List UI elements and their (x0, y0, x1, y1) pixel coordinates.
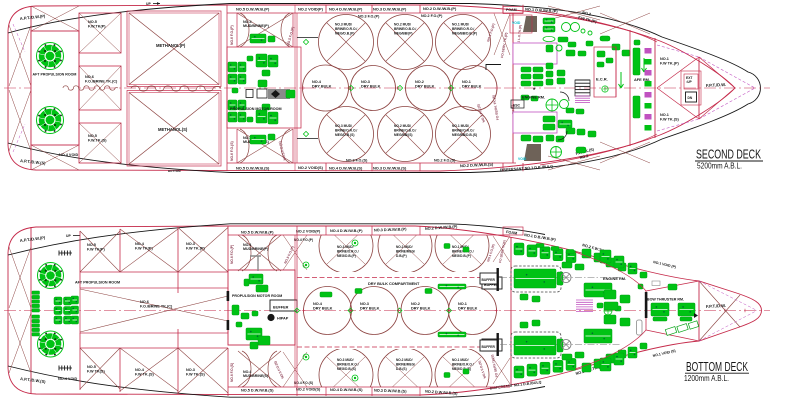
svg-text:MEG/BB/D.B.(S): MEG/BB/D.B.(S) (452, 133, 477, 137)
svg-text:NO.3 MUD/: NO.3 MUD/ (335, 124, 352, 128)
svg-text:VOID: VOID (512, 21, 521, 25)
svg-text:D.B.(P): D.B.(P) (396, 254, 407, 258)
svg-text:DRY BULK: DRY BULK (313, 306, 333, 310)
svg-text:MEG/BB/(S): MEG/BB/(S) (394, 133, 413, 137)
svg-text:NO.3 MUD/: NO.3 MUD/ (337, 358, 354, 362)
svg-text:MUD/BRINE(P): MUD/BRINE(P) (243, 24, 270, 28)
svg-text:E.C.R.: E.C.R. (596, 77, 608, 82)
svg-text:NO.2 F.O.(P): NO.2 F.O.(P) (421, 14, 443, 18)
svg-text:NO.4 D.W./W.B.(P): NO.4 D.W./W.B.(P) (329, 6, 363, 11)
svg-text:F.P.T./D.W.: F.P.T./D.W. (706, 303, 726, 309)
svg-text:MEG/D.B.(P): MEG/D.B.(P) (337, 254, 356, 258)
svg-text:BOW THRUSTER RM.: BOW THRUSTER RM. (647, 298, 684, 302)
svg-text:FOAM: FOAM (506, 8, 517, 12)
svg-text:F.P.T./D.W.: F.P.T./D.W. (706, 82, 726, 88)
svg-text:1200mm A.B.L.: 1200mm A.B.L. (684, 373, 729, 383)
svg-text:DRY BULK: DRY BULK (458, 306, 478, 310)
svg-text:NO.2 VOID(P): NO.2 VOID(P) (296, 230, 321, 234)
svg-text:ENGINE RM.: ENGINE RM. (522, 95, 545, 100)
svg-text:NO.2 VOID(S): NO.2 VOID(S) (298, 165, 324, 170)
svg-text:NO.6 F.O.(P): NO.6 F.O.(P) (230, 25, 234, 45)
svg-text:F.W.TK.(S): F.W.TK.(S) (88, 138, 107, 142)
svg-text:NO.2 MUD/: NO.2 MUD/ (396, 358, 413, 362)
svg-text:NO.2 VOID(S): NO.2 VOID(S) (296, 388, 321, 392)
svg-text:ESC: ESC (513, 103, 521, 107)
svg-text:NO.4 VOID: NO.4 VOID (59, 153, 78, 157)
svg-text:MUD/BRINE(S): MUD/BRINE(S) (243, 374, 269, 378)
svg-text:NO.3 F.O.(P): NO.3 F.O.(P) (358, 15, 380, 19)
svg-text:BRINE/O.R.O./: BRINE/O.R.O./ (335, 129, 357, 133)
svg-text:SECOND DECK: SECOND DECK (696, 147, 761, 162)
svg-text:MEG/D.B.(S): MEG/D.B.(S) (335, 133, 354, 137)
svg-text:MEG/BB/D.B.(P): MEG/BB/D.B.(P) (452, 32, 477, 36)
svg-text::UP: :UP (686, 80, 692, 84)
svg-text:METHANOL(P): METHANOL(P) (156, 43, 186, 48)
svg-text:F.W TK.(S): F.W TK.(S) (660, 117, 680, 121)
svg-text:DRY BULK COMPARTMENT: DRY BULK COMPARTMENT (368, 281, 420, 286)
svg-text:NO.2 VOID(P): NO.2 VOID(P) (298, 6, 324, 11)
svg-text:NO.5 D.W./W.B.(P): NO.5 D.W./W.B.(P) (236, 7, 270, 12)
svg-text:NO.2 D.W./W.B.(P): NO.2 D.W./W.B.(P) (423, 6, 457, 11)
svg-text:NO.6 F.O.(P): NO.6 F.O.(P) (230, 245, 234, 264)
svg-text:D.B.(S): D.B.(S) (396, 367, 407, 371)
svg-text:BRINE/O.R.O./: BRINE/O.R.O./ (337, 362, 359, 366)
svg-text:F.W TK(P): F.W TK(P) (87, 247, 105, 251)
svg-text:NO.5 D.W./W.B.(S): NO.5 D.W./W.B.(S) (241, 389, 274, 393)
svg-text:BOTTOM: BOTTOM (168, 169, 181, 173)
svg-text:BRINE/O.R.O./: BRINE/O.R.O./ (452, 27, 474, 31)
svg-text:NO.3 MUD/: NO.3 MUD/ (337, 245, 354, 249)
svg-text:F.W TK(P): F.W TK(P) (135, 246, 153, 250)
svg-text:BRINE/O.B.O./: BRINE/O.B.O./ (394, 27, 416, 31)
svg-text:NO.2 MUD/: NO.2 MUD/ (396, 245, 413, 249)
svg-text:NO.3 D.W./W.B.(P): NO.3 D.W./W.B.(P) (373, 6, 407, 11)
svg-text:MEG/BB/(P): MEG/BB/(P) (394, 32, 413, 36)
svg-text:NO.2 F.O.(S): NO.2 F.O.(S) (434, 159, 456, 163)
svg-text:UP: UP (66, 234, 71, 238)
svg-text:UP: UP (146, 2, 151, 6)
svg-text:MEG/D.B.(P): MEG/D.B.(P) (452, 254, 471, 258)
svg-text:BRINE/MEG/: BRINE/MEG/ (396, 249, 415, 253)
svg-text:F.W TK.(P): F.W TK.(P) (660, 61, 680, 65)
svg-text:NO.4 D.W./W.B.(P): NO.4 D.W./W.B.(P) (330, 229, 363, 233)
svg-text:NO.1 MUD/: NO.1 MUD/ (452, 358, 469, 362)
svg-text:F.W TK.(S): F.W TK.(S) (186, 372, 206, 376)
svg-text:HIPAP: HIPAP (277, 317, 289, 321)
svg-text:5200mm A.B.L.: 5200mm A.B.L. (697, 161, 742, 171)
svg-text:DRY BULK: DRY BULK (361, 84, 381, 88)
svg-text:BRINE/O.B.O./: BRINE/O.B.O./ (394, 129, 416, 133)
svg-text:AFT PROPULSION ROOM: AFT PROPULSION ROOM (33, 73, 77, 77)
svg-text:NO.3 F.O.(S): NO.3 F.O.(S) (346, 159, 368, 163)
svg-text:NO.1 MUD/: NO.1 MUD/ (452, 124, 469, 128)
svg-text:F.W TK.(S): F.W TK.(S) (135, 372, 155, 376)
svg-text:NO.6 F.O.(S): NO.6 F.O.(S) (230, 141, 234, 161)
svg-text:BOTTOM DECK: BOTTOM DECK (686, 359, 748, 374)
svg-text:BRINE/O.R.O./: BRINE/O.R.O./ (452, 362, 474, 366)
svg-text:MEG/D.B.(S): MEG/D.B.(S) (337, 367, 356, 371)
svg-text:BRINE/O.R.O./: BRINE/O.R.O./ (337, 249, 359, 253)
svg-text:NO.3 D.W./W.B.(S): NO.3 D.W./W.B.(S) (373, 165, 407, 170)
svg-text:BRINE/O.R.O./: BRINE/O.R.O./ (452, 129, 474, 133)
svg-text:BUFFER: BUFFER (482, 278, 496, 282)
svg-text:DRY BULK: DRY BULK (411, 306, 431, 310)
svg-text:NO.1 MUD/: NO.1 MUD/ (452, 23, 469, 27)
svg-text:NO.4 D.W./W.B.(S): NO.4 D.W./W.B.(S) (330, 388, 363, 392)
svg-text:BRINE/O.R.O./: BRINE/O.R.O./ (335, 27, 357, 31)
svg-text:NO.3 MUD/: NO.3 MUD/ (335, 23, 352, 27)
svg-text:NO.6 F.O.(S): NO.6 F.O.(S) (230, 363, 234, 382)
svg-text:BUFFER: BUFFER (273, 306, 289, 310)
svg-text:DRY BULK: DRY BULK (312, 84, 332, 88)
svg-text:NO.4 VOID: NO.4 VOID (58, 377, 77, 381)
svg-text:DRY BULK: DRY BULK (462, 84, 482, 88)
svg-text:F.O./BRINE TK.(C): F.O./BRINE TK.(C) (140, 304, 173, 308)
svg-text:BRINE/MEG/: BRINE/MEG/ (396, 362, 415, 366)
svg-text:F.W TK(S): F.W TK(S) (87, 369, 105, 373)
svg-text:F.O./BRINE TK.(C): F.O./BRINE TK.(C) (85, 79, 118, 83)
svg-text:DN: DN (688, 96, 693, 100)
svg-text:NO.4 D.W./W.B.(S): NO.4 D.W./W.B.(S) (329, 165, 363, 170)
svg-text:MEG/D.B.(P): MEG/D.B.(P) (335, 32, 354, 36)
svg-text:NO.5 D.W./W.B.(P): NO.5 D.W./W.B.(P) (241, 231, 274, 235)
svg-text:AFT PROPULSION ROOM: AFT PROPULSION ROOM (75, 281, 120, 285)
svg-text:DRY BULK: DRY BULK (415, 84, 435, 88)
svg-text:PROPULSION MOTOR ROOM: PROPULSION MOTOR ROOM (232, 294, 282, 298)
svg-text:PROPULSION MOTOR ROOM: PROPULSION MOTOR ROOM (230, 107, 282, 111)
svg-text:F.W.TK(P): F.W.TK(P) (88, 24, 106, 28)
svg-text:F.W TK.(P): F.W TK.(P) (186, 246, 206, 250)
svg-text:ENGINE RM.: ENGINE RM. (603, 276, 626, 281)
svg-text:BUFFER: BUFFER (482, 345, 496, 349)
svg-text:METHANOL(S): METHANOL(S) (158, 127, 188, 132)
svg-text:DRY BULK: DRY BULK (360, 306, 380, 310)
svg-text:MUD/BRINE(P): MUD/BRINE(P) (243, 247, 269, 251)
svg-text:NO.5 D.W./W.B.(S): NO.5 D.W./W.B.(S) (236, 165, 270, 170)
svg-text:VOID: VOID (518, 157, 527, 161)
svg-text:NO.2 MUD/: NO.2 MUD/ (394, 23, 411, 27)
svg-text:NO.2 MUD/: NO.2 MUD/ (394, 124, 411, 128)
